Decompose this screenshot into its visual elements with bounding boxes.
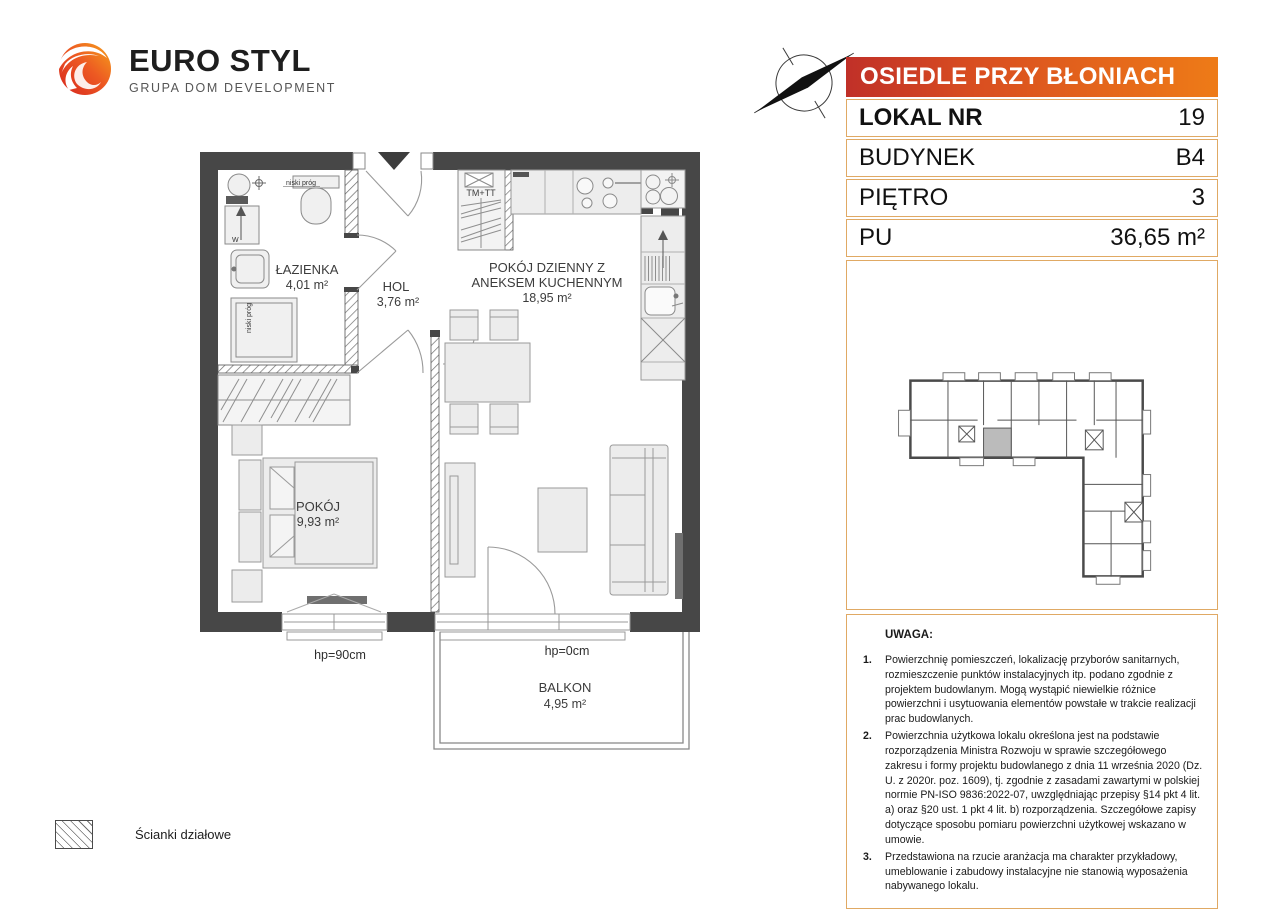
entrance-door-swing: [366, 171, 422, 216]
unit-info-panel: OSIEDLE PRZY BŁONIACH LOKAL NR 19 BUDYNE…: [846, 57, 1218, 909]
building-key-plan: [846, 260, 1218, 610]
notes-box: UWAGA: 1. Powierzchnię pomieszczeń, loka…: [846, 614, 1218, 909]
notes-list: 1. Powierzchnię pomieszczeń, lokalizację…: [857, 653, 1205, 894]
nightstand-icon: [239, 512, 261, 562]
bedroom-door-swing: [357, 330, 423, 373]
building-outline: [910, 381, 1142, 577]
info-label: BUDYNEK: [859, 144, 975, 172]
bath-sink-icon: [231, 250, 269, 288]
legend-label: Ścianki działowe: [135, 827, 231, 842]
room-label-bedroom: POKÓJ: [296, 499, 340, 514]
info-row-budynek: BUDYNEK B4: [846, 139, 1218, 177]
sofa-icon: [610, 445, 668, 595]
estate-name-header: OSIEDLE PRZY BŁONIACH: [846, 57, 1218, 97]
tm-tt-closet: [458, 170, 505, 250]
svg-text:18,95 m²: 18,95 m²: [522, 291, 571, 305]
dresser-icon: [232, 425, 262, 455]
svg-text:ANEKSEM KUCHENNYM: ANEKSEM KUCHENNYM: [472, 275, 623, 290]
room-label-balcony: BALKON: [539, 680, 592, 695]
notes-title: UWAGA:: [885, 629, 1205, 641]
note-item: 2. Powierzchnia użytkowa lokalu określon…: [857, 729, 1205, 848]
toilet-icon: [301, 188, 331, 224]
room-label-hall: HOL: [383, 279, 410, 294]
svg-text:9,93 m²: 9,93 m²: [297, 515, 339, 529]
eurostyl-flame-icon: [55, 38, 117, 102]
shower-tray-icon: [231, 298, 297, 362]
kitchen-counter: [511, 170, 653, 214]
room-label-living: POKÓJ DZIENNY Z: [489, 260, 605, 275]
room-label-bathroom: ŁAZIENKA: [276, 262, 339, 277]
brand-logo: EURO STYL GRUPA DOM DEVELOPMENT: [55, 38, 336, 102]
partition-hatch-swatch-icon: [55, 820, 93, 849]
info-row-pietro: PIĘTRO 3: [846, 179, 1218, 217]
svg-text:4,95 m²: 4,95 m²: [544, 697, 586, 711]
compass-north-icon: [742, 28, 862, 138]
legend: Ścianki działowe: [55, 820, 231, 849]
balcony-door-swing: [488, 547, 555, 614]
svg-text:3,76 m²: 3,76 m²: [377, 295, 419, 309]
info-value: 36,65 m²: [1110, 224, 1205, 252]
bedroom-window: [282, 594, 387, 640]
wardrobe-icon: [218, 375, 350, 425]
tm-tt-label: TM+TT: [466, 188, 496, 198]
floor-plan: ŁAZIENKA 4,01 m² HOL 3,76 m² POKÓJ DZIEN…: [195, 140, 715, 770]
brand-tagline: GRUPA DOM DEVELOPMENT: [129, 81, 336, 95]
washer-label: W: [232, 237, 239, 244]
info-label: PU: [859, 224, 892, 252]
radiator-living: [675, 533, 683, 599]
hp-balcony-label: hp=0cm: [545, 644, 590, 658]
info-label: LOKAL NR: [859, 104, 983, 132]
dining-set: [445, 310, 530, 434]
info-row-pu: PU 36,65 m²: [846, 219, 1218, 257]
svg-text:4,01 m²: 4,01 m²: [286, 278, 328, 292]
dining-table-icon: [445, 343, 530, 402]
nightstand-icon: [239, 460, 261, 510]
coffee-table-icon: [538, 488, 587, 552]
faucet-cross-icon: [252, 176, 266, 190]
note-item: 3. Przedstawiona na rzucie aranżacja ma …: [857, 850, 1205, 894]
info-row-lokal: LOKAL NR 19: [846, 99, 1218, 137]
info-label: PIĘTRO: [859, 184, 948, 212]
info-value: B4: [1176, 144, 1205, 172]
info-value: 3: [1192, 184, 1205, 212]
niski-prog-label-2: niski próg: [246, 303, 253, 333]
niski-prog-label: niski próg: [286, 180, 316, 187]
info-value: 19: [1178, 104, 1205, 132]
brand-name: EURO STYL: [129, 45, 336, 76]
entrance-marker-icon: [378, 152, 410, 170]
note-item: 1. Powierzchnię pomieszczeń, lokalizację…: [857, 653, 1205, 727]
entrance-frame-left: [353, 153, 365, 169]
entrance-frame-right: [421, 153, 433, 169]
washbasin-icon: [228, 174, 250, 196]
highlighted-unit: [984, 428, 1012, 457]
hp-bedroom-label: hp=90cm: [314, 648, 366, 662]
kitchen-column: [641, 170, 685, 380]
